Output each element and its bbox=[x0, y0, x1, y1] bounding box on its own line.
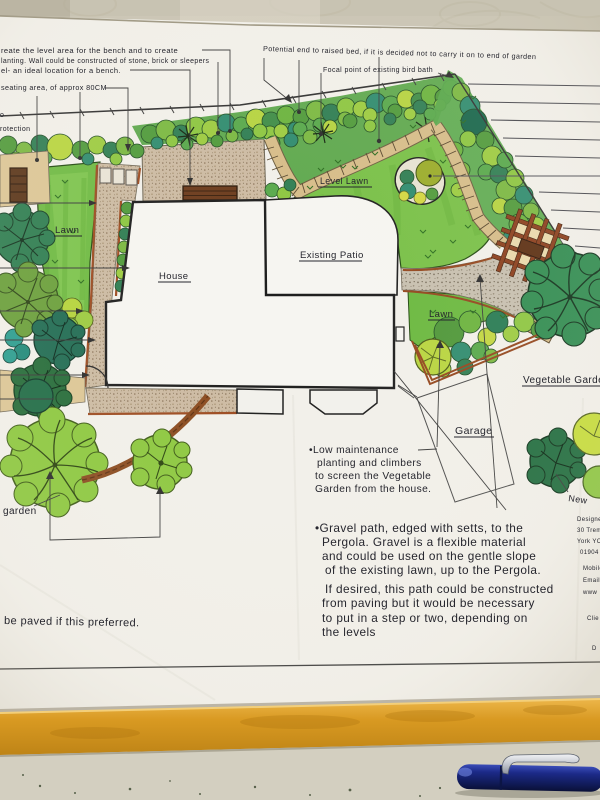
svg-text:o: o bbox=[0, 112, 4, 119]
svg-text:seating area, of approx 80CM: seating area, of approx 80CM bbox=[1, 83, 107, 92]
svg-text:York YO: York YO bbox=[577, 539, 600, 545]
svg-text:Email: Email bbox=[583, 578, 600, 584]
svg-text:Level Lawn: Level Lawn bbox=[320, 176, 369, 186]
svg-text:rotection: rotection bbox=[0, 126, 30, 133]
svg-text:lanting. Wall could be constru: lanting. Wall could be constructed of st… bbox=[1, 58, 210, 65]
svg-text:•Low maintenance: •Low maintenance bbox=[309, 445, 399, 456]
svg-text:Existing Patio: Existing Patio bbox=[300, 250, 364, 261]
svg-text:•Gravel path, edged with setts: •Gravel path, edged with setts, to the bbox=[315, 521, 523, 535]
svg-text:the levels: the levels bbox=[322, 625, 376, 639]
svg-text:Garden from the house.: Garden from the house. bbox=[315, 484, 431, 495]
svg-text:reate the level area for the b: reate the level area for the bench and t… bbox=[1, 46, 178, 55]
svg-text:House: House bbox=[159, 271, 188, 282]
svg-text:If desired, this path could be: If desired, this path could be construct… bbox=[325, 582, 554, 596]
svg-text:Pergola. Gravel is a flexible: Pergola. Gravel is a flexible material bbox=[322, 535, 526, 549]
svg-text:to put in a step or two, depen: to put in a step or two, depending on bbox=[322, 611, 528, 625]
svg-text:and could be used on the gentl: and could be used on the gentle slope bbox=[322, 549, 536, 563]
svg-text:D: D bbox=[592, 646, 597, 652]
svg-text:garden: garden bbox=[3, 506, 37, 517]
svg-text:Focal point of existing bird b: Focal point of existing bird bath bbox=[323, 67, 433, 74]
svg-text:Designed: Designed bbox=[577, 517, 600, 523]
svg-text:Garage: Garage bbox=[455, 425, 492, 437]
svg-text:el- an ideal location for a be: el- an ideal location for a bench. bbox=[1, 66, 121, 75]
svg-text:www: www bbox=[582, 590, 597, 596]
svg-text:of the existing lawn, up to th: of the existing lawn, up to the Pergola. bbox=[325, 563, 541, 577]
svg-text:to screen the Vegetable: to screen the Vegetable bbox=[315, 471, 431, 482]
svg-text:Lawn: Lawn bbox=[429, 309, 453, 320]
svg-text:planting and climbers: planting and climbers bbox=[317, 458, 422, 469]
svg-text:30 Trem: 30 Trem bbox=[577, 528, 600, 534]
svg-text:be paved if this preferred.: be paved if this preferred. bbox=[4, 615, 140, 629]
svg-text:Clie: Clie bbox=[587, 616, 599, 622]
svg-text:Lawn: Lawn bbox=[55, 225, 79, 236]
svg-text:01904: 01904 bbox=[580, 550, 599, 556]
svg-text:Mobile: Mobile bbox=[583, 566, 600, 572]
svg-text:Vegetable Garden: Vegetable Garden bbox=[523, 375, 600, 386]
svg-text:from paving but it would be ne: from paving but it would be necessary bbox=[322, 596, 535, 610]
